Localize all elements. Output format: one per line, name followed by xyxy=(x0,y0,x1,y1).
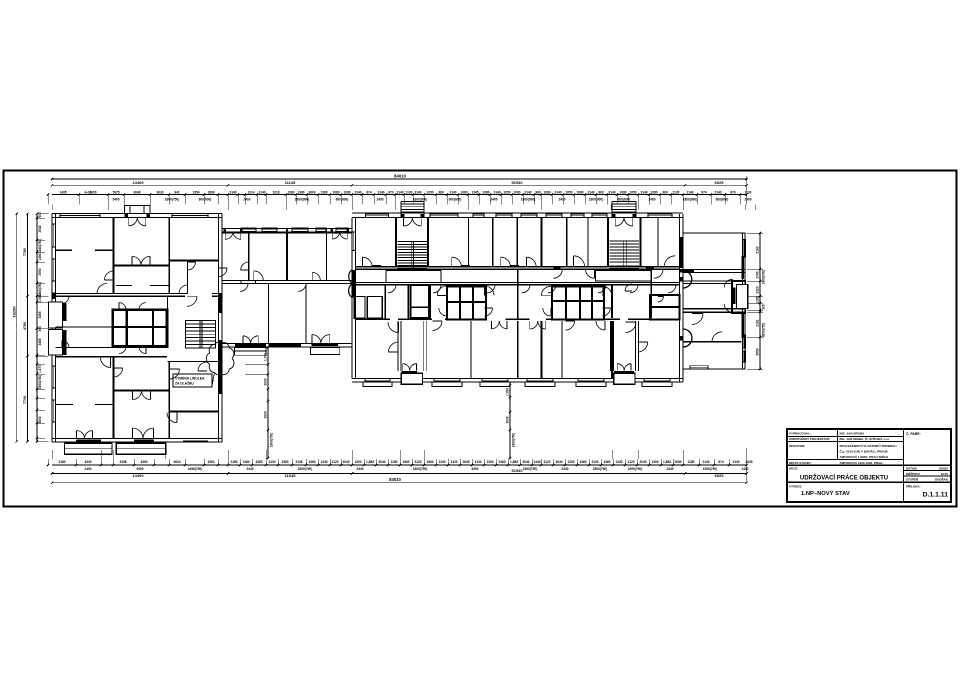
svg-text:1,888: 1,888 xyxy=(663,460,671,464)
svg-text:3120: 3120 xyxy=(543,460,550,464)
svg-text:3138: 3138 xyxy=(295,460,302,464)
svg-text:1130: 1130 xyxy=(745,190,752,194)
svg-text:1130: 1130 xyxy=(673,190,680,194)
svg-text:1,575: 1,575 xyxy=(38,365,42,373)
svg-text:1590(750): 1590(750) xyxy=(703,467,718,471)
svg-text:D.1.1.11: D.1.1.11 xyxy=(923,492,949,499)
svg-text:600(600): 600(600) xyxy=(449,198,462,202)
svg-text:11645: 11645 xyxy=(285,473,297,478)
svg-text:1440(780): 1440(780) xyxy=(38,239,42,254)
svg-text:2700: 2700 xyxy=(756,271,760,278)
svg-text:600(600): 600(600) xyxy=(618,198,631,202)
svg-text:3130: 3130 xyxy=(268,460,275,464)
svg-text:1080: 1080 xyxy=(460,190,467,194)
svg-text:VÝKRES:: VÝKRES: xyxy=(789,484,802,489)
svg-text:1800(750): 1800(750) xyxy=(413,467,428,471)
svg-text:11145: 11145 xyxy=(285,180,296,185)
svg-text:3/2023: 3/2023 xyxy=(939,466,949,470)
svg-text:MÍSTO STAVBY:: MÍSTO STAVBY: xyxy=(789,460,812,465)
svg-text:1800(750): 1800(750) xyxy=(270,433,274,448)
svg-text:1340: 1340 xyxy=(533,460,540,464)
svg-text:3360: 3360 xyxy=(426,460,433,464)
svg-text:2400: 2400 xyxy=(243,198,250,202)
svg-text:1165: 1165 xyxy=(756,296,760,303)
svg-text:3360: 3360 xyxy=(281,460,288,464)
svg-text:3130: 3130 xyxy=(474,460,481,464)
svg-text:2400: 2400 xyxy=(84,467,91,471)
svg-text:600(600): 600(600) xyxy=(199,198,212,202)
svg-text:2160: 2160 xyxy=(756,246,760,253)
svg-text:1,888: 1,888 xyxy=(366,460,374,464)
svg-text:3485: 3485 xyxy=(38,338,42,345)
svg-text:1800(750): 1800(750) xyxy=(298,467,313,471)
svg-text:1800(900): 1800(900) xyxy=(413,198,428,202)
svg-text:3364: 3364 xyxy=(207,460,214,464)
svg-text:STUPEŇ: STUPEŇ xyxy=(906,477,918,482)
svg-text:UDRŽOVACÍ PRÁCE OBJEKTU: UDRŽOVACÍ PRÁCE OBJEKTU xyxy=(800,474,888,482)
svg-text:VYPRACOVAL:: VYPRACOVAL: xyxy=(789,432,811,436)
svg-text:1800(700): 1800(700) xyxy=(762,270,766,285)
svg-text:874: 874 xyxy=(366,190,372,194)
svg-text:1080: 1080 xyxy=(576,190,583,194)
svg-text:960: 960 xyxy=(662,190,668,194)
svg-text:2400: 2400 xyxy=(648,198,655,202)
svg-text:300: 300 xyxy=(38,326,42,332)
svg-text:500: 500 xyxy=(38,212,42,218)
svg-text:3120: 3120 xyxy=(331,460,338,464)
svg-text:3338: 3338 xyxy=(119,460,126,464)
svg-text:5400: 5400 xyxy=(112,198,119,202)
svg-text:PŘÍLOHA:: PŘÍLOHA: xyxy=(906,484,921,489)
svg-text:7875: 7875 xyxy=(112,190,119,194)
svg-text:14400: 14400 xyxy=(132,180,144,185)
svg-text:3140: 3140 xyxy=(414,190,421,194)
svg-text:1080: 1080 xyxy=(650,190,657,194)
svg-text:84010: 84010 xyxy=(394,174,406,179)
svg-text:1354: 1354 xyxy=(192,190,199,194)
svg-text:51540: 51540 xyxy=(511,180,523,185)
svg-text:6925: 6925 xyxy=(715,180,725,185)
svg-text:3140: 3140 xyxy=(493,190,500,194)
svg-text:2180: 2180 xyxy=(230,460,237,464)
svg-text:1460(780): 1460(780) xyxy=(38,282,42,297)
svg-text:2140: 2140 xyxy=(732,460,739,464)
svg-text:6550: 6550 xyxy=(756,348,760,355)
svg-text:1800(750): 1800(750) xyxy=(165,198,180,202)
svg-text:960: 960 xyxy=(598,190,604,194)
svg-text:DVOŘÁK: DVOŘÁK xyxy=(935,477,949,482)
svg-text:1380: 1380 xyxy=(297,190,304,194)
svg-text:AMFOROVÁ 1930-1932, PRAH.: AMFOROVÁ 1930-1932, PRAH. xyxy=(840,460,884,465)
svg-text:3360: 3360 xyxy=(498,460,505,464)
svg-text:1080: 1080 xyxy=(482,190,489,194)
svg-text:3140: 3140 xyxy=(640,190,647,194)
svg-text:1656(750): 1656(750) xyxy=(188,467,203,471)
svg-text:2320: 2320 xyxy=(756,286,760,293)
svg-text:INVESTOR:: INVESTOR: xyxy=(789,444,805,448)
svg-text:960: 960 xyxy=(535,190,541,194)
svg-text:874: 874 xyxy=(701,190,707,194)
svg-text:14400: 14400 xyxy=(132,473,144,478)
svg-text:3000: 3000 xyxy=(308,190,315,194)
svg-text:DATUM: DATUM xyxy=(906,466,917,470)
svg-text:1800(900): 1800(900) xyxy=(683,198,698,202)
svg-text:3040: 3040 xyxy=(522,460,529,464)
svg-text:1080: 1080 xyxy=(332,190,339,194)
svg-text:2400: 2400 xyxy=(490,198,497,202)
svg-text:3140: 3140 xyxy=(354,190,361,194)
svg-text:1180: 1180 xyxy=(688,460,695,464)
svg-text:3000: 3000 xyxy=(89,190,96,194)
svg-text:3120: 3120 xyxy=(450,460,457,464)
svg-text:7780: 7780 xyxy=(23,248,27,256)
svg-text:18290: 18290 xyxy=(11,306,16,318)
svg-text:3360: 3360 xyxy=(308,460,315,464)
svg-text:1590(750): 1590(750) xyxy=(523,467,538,471)
svg-text:3360: 3360 xyxy=(402,460,409,464)
svg-text:870: 870 xyxy=(388,190,394,194)
svg-text:MĚŘÍTKO: MĚŘÍTKO xyxy=(906,471,920,476)
svg-text:ZA DLAŽBU: ZA DLAŽBU xyxy=(175,381,194,386)
svg-text:1435: 1435 xyxy=(59,190,66,194)
svg-text:2080: 2080 xyxy=(674,460,681,464)
svg-text:ING. JAN SROBA: ING. JAN SROBA xyxy=(840,432,866,436)
svg-text:1080: 1080 xyxy=(513,190,520,194)
svg-text:1080: 1080 xyxy=(287,190,294,194)
svg-text:ING. JAN SROBA, IČ: 87654321 s: ING. JAN SROBA, IČ: 87654321 s.r.o xyxy=(840,436,890,441)
svg-text:941: 941 xyxy=(174,190,180,194)
svg-text:3360: 3360 xyxy=(603,460,610,464)
svg-text:4780: 4780 xyxy=(23,322,27,330)
svg-text:5400: 5400 xyxy=(136,467,143,471)
svg-text:1490: 1490 xyxy=(741,467,748,471)
svg-text:2440: 2440 xyxy=(246,467,253,471)
svg-text:1380: 1380 xyxy=(242,460,249,464)
svg-text:ZODPOVĚDNÝ PROJEKTANT:: ZODPOVĚDNÝ PROJEKTANT: xyxy=(789,436,830,441)
svg-text:305: 305 xyxy=(762,304,766,310)
svg-text:1050: 1050 xyxy=(629,190,636,194)
svg-text:1/100: 1/100 xyxy=(940,472,948,476)
svg-text:2140: 2140 xyxy=(702,460,709,464)
svg-text:1180: 1180 xyxy=(391,460,398,464)
svg-text:1080: 1080 xyxy=(543,190,550,194)
svg-text:3140: 3140 xyxy=(229,190,236,194)
svg-text:2540: 2540 xyxy=(38,225,42,232)
svg-text:3130: 3130 xyxy=(414,460,421,464)
svg-text:1340: 1340 xyxy=(438,460,445,464)
svg-text:1130: 1130 xyxy=(406,190,413,194)
svg-text:1800(750): 1800(750) xyxy=(593,467,608,471)
svg-text:2191: 2191 xyxy=(756,319,760,326)
svg-text:1800(900): 1800(900) xyxy=(295,198,310,202)
svg-text:1850(760): 1850(760) xyxy=(38,375,42,390)
svg-text:2400: 2400 xyxy=(558,198,565,202)
svg-text:3040: 3040 xyxy=(378,460,385,464)
svg-text:1345: 1345 xyxy=(471,190,478,194)
svg-text:1018: 1018 xyxy=(272,190,279,194)
svg-text:5300: 5300 xyxy=(471,467,478,471)
svg-text:2024: 2024 xyxy=(264,411,268,418)
svg-text:1314: 1314 xyxy=(247,190,254,194)
svg-text:2140: 2140 xyxy=(686,190,693,194)
svg-text:1,888: 1,888 xyxy=(510,460,518,464)
svg-text:2645: 2645 xyxy=(462,460,469,464)
svg-text:600(600): 600(600) xyxy=(716,198,729,202)
svg-text:1080: 1080 xyxy=(343,190,350,194)
svg-text:1,790: 1,790 xyxy=(264,353,268,361)
svg-text:3465: 3465 xyxy=(38,311,42,318)
svg-text:3030: 3030 xyxy=(506,416,510,423)
svg-text:2590: 2590 xyxy=(38,268,42,275)
svg-text:3120: 3120 xyxy=(627,460,634,464)
svg-text:4850(755): 4850(755) xyxy=(762,323,766,338)
svg-text:AMFOROVÁ 1 80/EL PRAH SMÍCH: AMFOROVÁ 1 80/EL PRAH SMÍCH xyxy=(840,454,889,459)
svg-text:3634: 3634 xyxy=(173,460,180,464)
svg-text:1800(900): 1800(900) xyxy=(521,198,536,202)
svg-text:1300: 1300 xyxy=(354,460,361,464)
svg-text:2140: 2140 xyxy=(714,190,721,194)
svg-text:1,780: 1,780 xyxy=(506,388,510,396)
svg-text:1080: 1080 xyxy=(619,190,626,194)
svg-text:1300: 1300 xyxy=(486,460,493,464)
svg-text:4600: 4600 xyxy=(38,416,42,423)
svg-text:Č. PARÉ:: Č. PARÉ: xyxy=(906,431,921,436)
svg-text:2040: 2040 xyxy=(639,460,646,464)
svg-text:1,500: 1,500 xyxy=(38,294,42,302)
svg-text:3180: 3180 xyxy=(58,460,65,464)
svg-text:VÝMĚNA LINOLEA: VÝMĚNA LINOLEA xyxy=(175,376,205,381)
svg-text:2400: 2400 xyxy=(376,198,383,202)
svg-text:3360: 3360 xyxy=(140,460,147,464)
svg-text:3140: 3140 xyxy=(608,190,615,194)
svg-text:3130: 3130 xyxy=(591,460,598,464)
svg-text:3330: 3330 xyxy=(84,460,91,464)
svg-text:3140: 3140 xyxy=(258,190,265,194)
svg-text:3040: 3040 xyxy=(342,460,349,464)
svg-text:600(600): 600(600) xyxy=(336,198,349,202)
svg-text:3030: 3030 xyxy=(264,378,268,385)
svg-text:1340: 1340 xyxy=(615,460,622,464)
svg-text:2440: 2440 xyxy=(666,467,673,471)
svg-text:1.NP–NOVÝ STAV: 1.NP–NOVÝ STAV xyxy=(801,490,850,497)
svg-text:1490: 1490 xyxy=(38,253,42,260)
svg-text:3140: 3140 xyxy=(587,190,594,194)
svg-text:1990(750): 1990(750) xyxy=(628,467,643,471)
svg-text:3360: 3360 xyxy=(255,460,262,464)
svg-text:3040: 3040 xyxy=(555,460,562,464)
svg-text:1050: 1050 xyxy=(426,190,433,194)
svg-text:3140: 3140 xyxy=(396,190,403,194)
svg-text:3140: 3140 xyxy=(377,190,384,194)
svg-text:1300: 1300 xyxy=(651,460,658,464)
svg-text:1808: 1808 xyxy=(207,190,214,194)
svg-text:1050: 1050 xyxy=(565,190,572,194)
svg-text:3030: 3030 xyxy=(156,190,163,194)
svg-text:1800(750): 1800(750) xyxy=(512,433,516,448)
svg-text:1300: 1300 xyxy=(567,460,574,464)
svg-text:1800(900): 1800(900) xyxy=(589,198,604,202)
svg-text:3040: 3040 xyxy=(133,190,140,194)
svg-text:SPOLEČENSTVÍ VLASTNÍKŮ TROBRAU: SPOLEČENSTVÍ VLASTNÍKŮ TROBRAU xyxy=(840,443,897,448)
svg-text:3360: 3360 xyxy=(579,460,586,464)
svg-text:870: 870 xyxy=(730,190,736,194)
svg-text:2440: 2440 xyxy=(356,467,363,471)
svg-text:980: 980 xyxy=(438,190,444,194)
svg-text:7709: 7709 xyxy=(23,396,27,404)
svg-text:84010: 84010 xyxy=(389,477,401,482)
svg-text:3140: 3140 xyxy=(554,190,561,194)
svg-text:6925: 6925 xyxy=(715,473,725,478)
svg-text:1340: 1340 xyxy=(320,460,327,464)
svg-text:51540: 51540 xyxy=(511,468,523,473)
svg-text:2400: 2400 xyxy=(744,198,751,202)
svg-text:3140: 3140 xyxy=(449,190,456,194)
svg-text:3140: 3140 xyxy=(524,190,531,194)
svg-text:AKCE:: AKCE: xyxy=(789,467,799,471)
svg-text:2440: 2440 xyxy=(561,467,568,471)
svg-text:1050: 1050 xyxy=(503,190,510,194)
svg-text:1380: 1380 xyxy=(320,190,327,194)
svg-text:874: 874 xyxy=(718,460,724,464)
svg-text:Č.p. 1010-1100 V BOHÁLL PRAHA: Č.p. 1010-1100 V BOHÁLL PRAHA xyxy=(840,449,889,454)
